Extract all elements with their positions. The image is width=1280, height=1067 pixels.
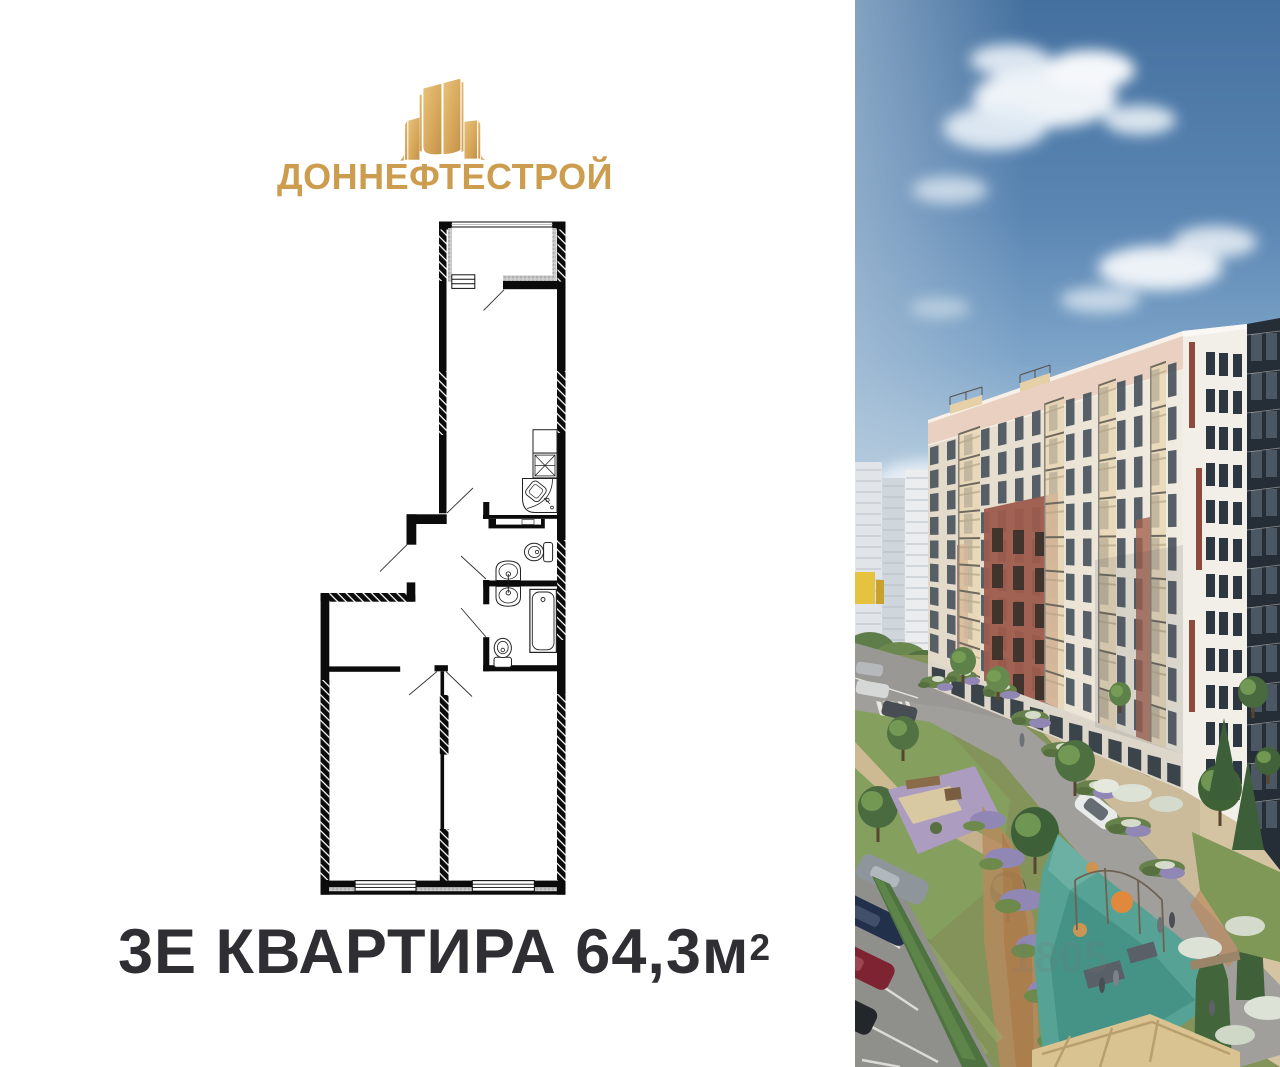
svg-text:1805: 1805 [1010,933,1108,982]
